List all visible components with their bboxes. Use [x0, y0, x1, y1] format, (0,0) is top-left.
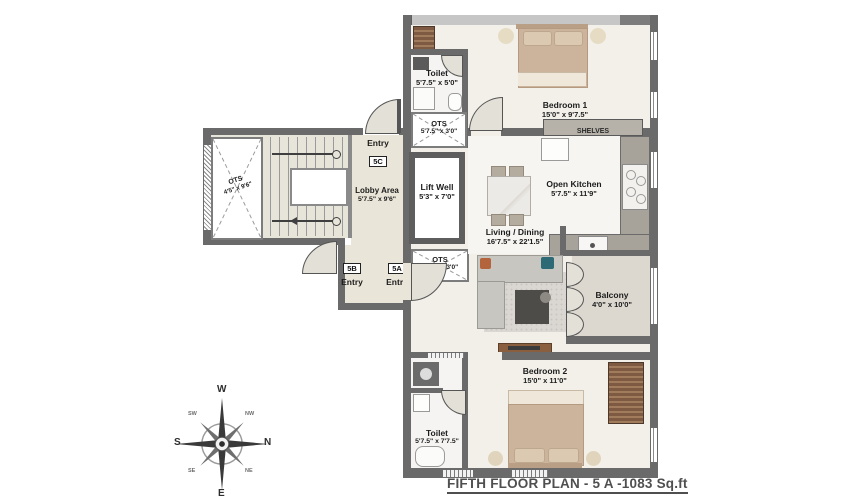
- compass-se: SE: [188, 468, 195, 474]
- kitchen-shelves: SHELVES: [543, 119, 643, 136]
- ots-left-box: OTS 4'5" x 9'6": [211, 137, 263, 240]
- toilet2-washbasin: [413, 394, 430, 412]
- bedroom2-wardrobe: [608, 362, 644, 424]
- compass-s: S: [174, 437, 181, 448]
- bed2-pouffe: [586, 451, 601, 466]
- sofa-pillow-teal: [541, 257, 554, 269]
- window: [651, 92, 657, 118]
- living-label: Living / Dining 16'7.5" x 22'1.5": [455, 227, 575, 246]
- entry-5c-label: Entry 5C: [355, 138, 401, 169]
- wing-top-wall: [203, 128, 363, 135]
- bed1-pillow: [554, 31, 583, 46]
- bed2-pillow: [514, 448, 545, 463]
- stove-burner: [636, 176, 646, 186]
- window: [651, 32, 657, 60]
- entry-5b-label: 5B Entry: [336, 257, 368, 287]
- stair-arrow-end: [332, 217, 341, 226]
- bed1-pillow: [523, 31, 552, 46]
- toilet2-label: Toilet 5'7.5" x 7'7.5": [406, 428, 468, 446]
- sofa-pillow-orange: [480, 258, 491, 269]
- tv-screen: [508, 346, 540, 350]
- vestibule-bottom-wall: [338, 303, 411, 310]
- compass-w: W: [217, 384, 226, 395]
- ots-top-label: OTS 5'7.5" x 3'0": [413, 119, 465, 136]
- toilet2-partition: [411, 388, 443, 393]
- passage-basin: [413, 362, 439, 386]
- compass-ne: NE: [245, 468, 253, 474]
- tower-right-wall: [650, 15, 658, 478]
- balcony-top-wall: [566, 250, 650, 256]
- bed1-nightstand: [498, 28, 514, 44]
- bed1-nightstand: [590, 28, 606, 44]
- stair-arrow-head: [290, 217, 297, 225]
- unit-5b-tag: 5B: [343, 263, 361, 274]
- entry-5a-door-gap: [403, 263, 411, 300]
- balcony-bottom-wall: [566, 336, 658, 344]
- plan-title: FIFTH FLOOR PLAN - 5 A -1083 Sq.ft: [447, 476, 688, 494]
- window: [651, 152, 657, 188]
- stair-arrow-line: [272, 153, 334, 155]
- stove-burner: [636, 194, 646, 204]
- basin-bowl: [420, 368, 432, 380]
- stair-arrow-line: [272, 220, 334, 222]
- bedroom2-label: Bedroom 2 15'0" x 11'0": [490, 366, 600, 385]
- compass-nw: NW: [245, 411, 254, 417]
- ots-top-box: OTS 5'7.5" x 3'0": [411, 112, 467, 148]
- kitchen-fridge: [541, 138, 569, 161]
- coffee-table-vase: [540, 292, 551, 303]
- stair-arrow-end: [332, 150, 341, 159]
- toilet2-shower: [415, 446, 445, 467]
- shelves-label: SHELVES: [577, 128, 609, 135]
- toilet1-label: Toilet 5'7.5" x 5'0": [408, 68, 466, 87]
- bed1-sheet-fold: [518, 72, 586, 86]
- balcony-label: Balcony 4'0" x 10'0": [576, 290, 648, 309]
- compass-e: E: [218, 488, 225, 499]
- compass-sw: SW: [188, 411, 197, 417]
- entry-5c-door-swing: [365, 99, 400, 134]
- staircase-landing: [290, 168, 348, 206]
- sofa-chaise: [477, 281, 505, 329]
- bedroom1-label: Bedroom 1 15'0" x 9'7.5": [505, 100, 625, 119]
- entry-5b-door-swing: [302, 241, 337, 274]
- lobby-label: Lobby Area 5'7.5" x 9'6": [347, 186, 407, 204]
- bed2-pouffe: [488, 451, 503, 466]
- window: [651, 268, 657, 324]
- sink-drain: [590, 243, 595, 248]
- dining-chair: [491, 214, 506, 226]
- unit-5c-tag: 5C: [369, 156, 387, 167]
- bed2-headboard: [508, 463, 582, 468]
- dining-chair: [509, 214, 524, 226]
- bed2-pillow: [548, 448, 579, 463]
- bedroom2-door-gap: [468, 352, 502, 360]
- lift-well-label: Lift Well 5'3" x 7'0": [409, 182, 465, 201]
- toilet1-shower: [413, 87, 435, 110]
- entry-5c-door-leaf: [397, 99, 401, 133]
- floor-plan-canvas: Bedroom 1 15'0" x 9'7.5" Toilet 5'7.5" x…: [0, 0, 854, 499]
- dining-table: [487, 176, 531, 216]
- kitchen-label: Open Kitchen 5'7.5" x 11'9": [514, 179, 634, 198]
- window: [651, 428, 657, 462]
- compass-n: N: [264, 437, 271, 448]
- toilet1-wc: [448, 93, 462, 111]
